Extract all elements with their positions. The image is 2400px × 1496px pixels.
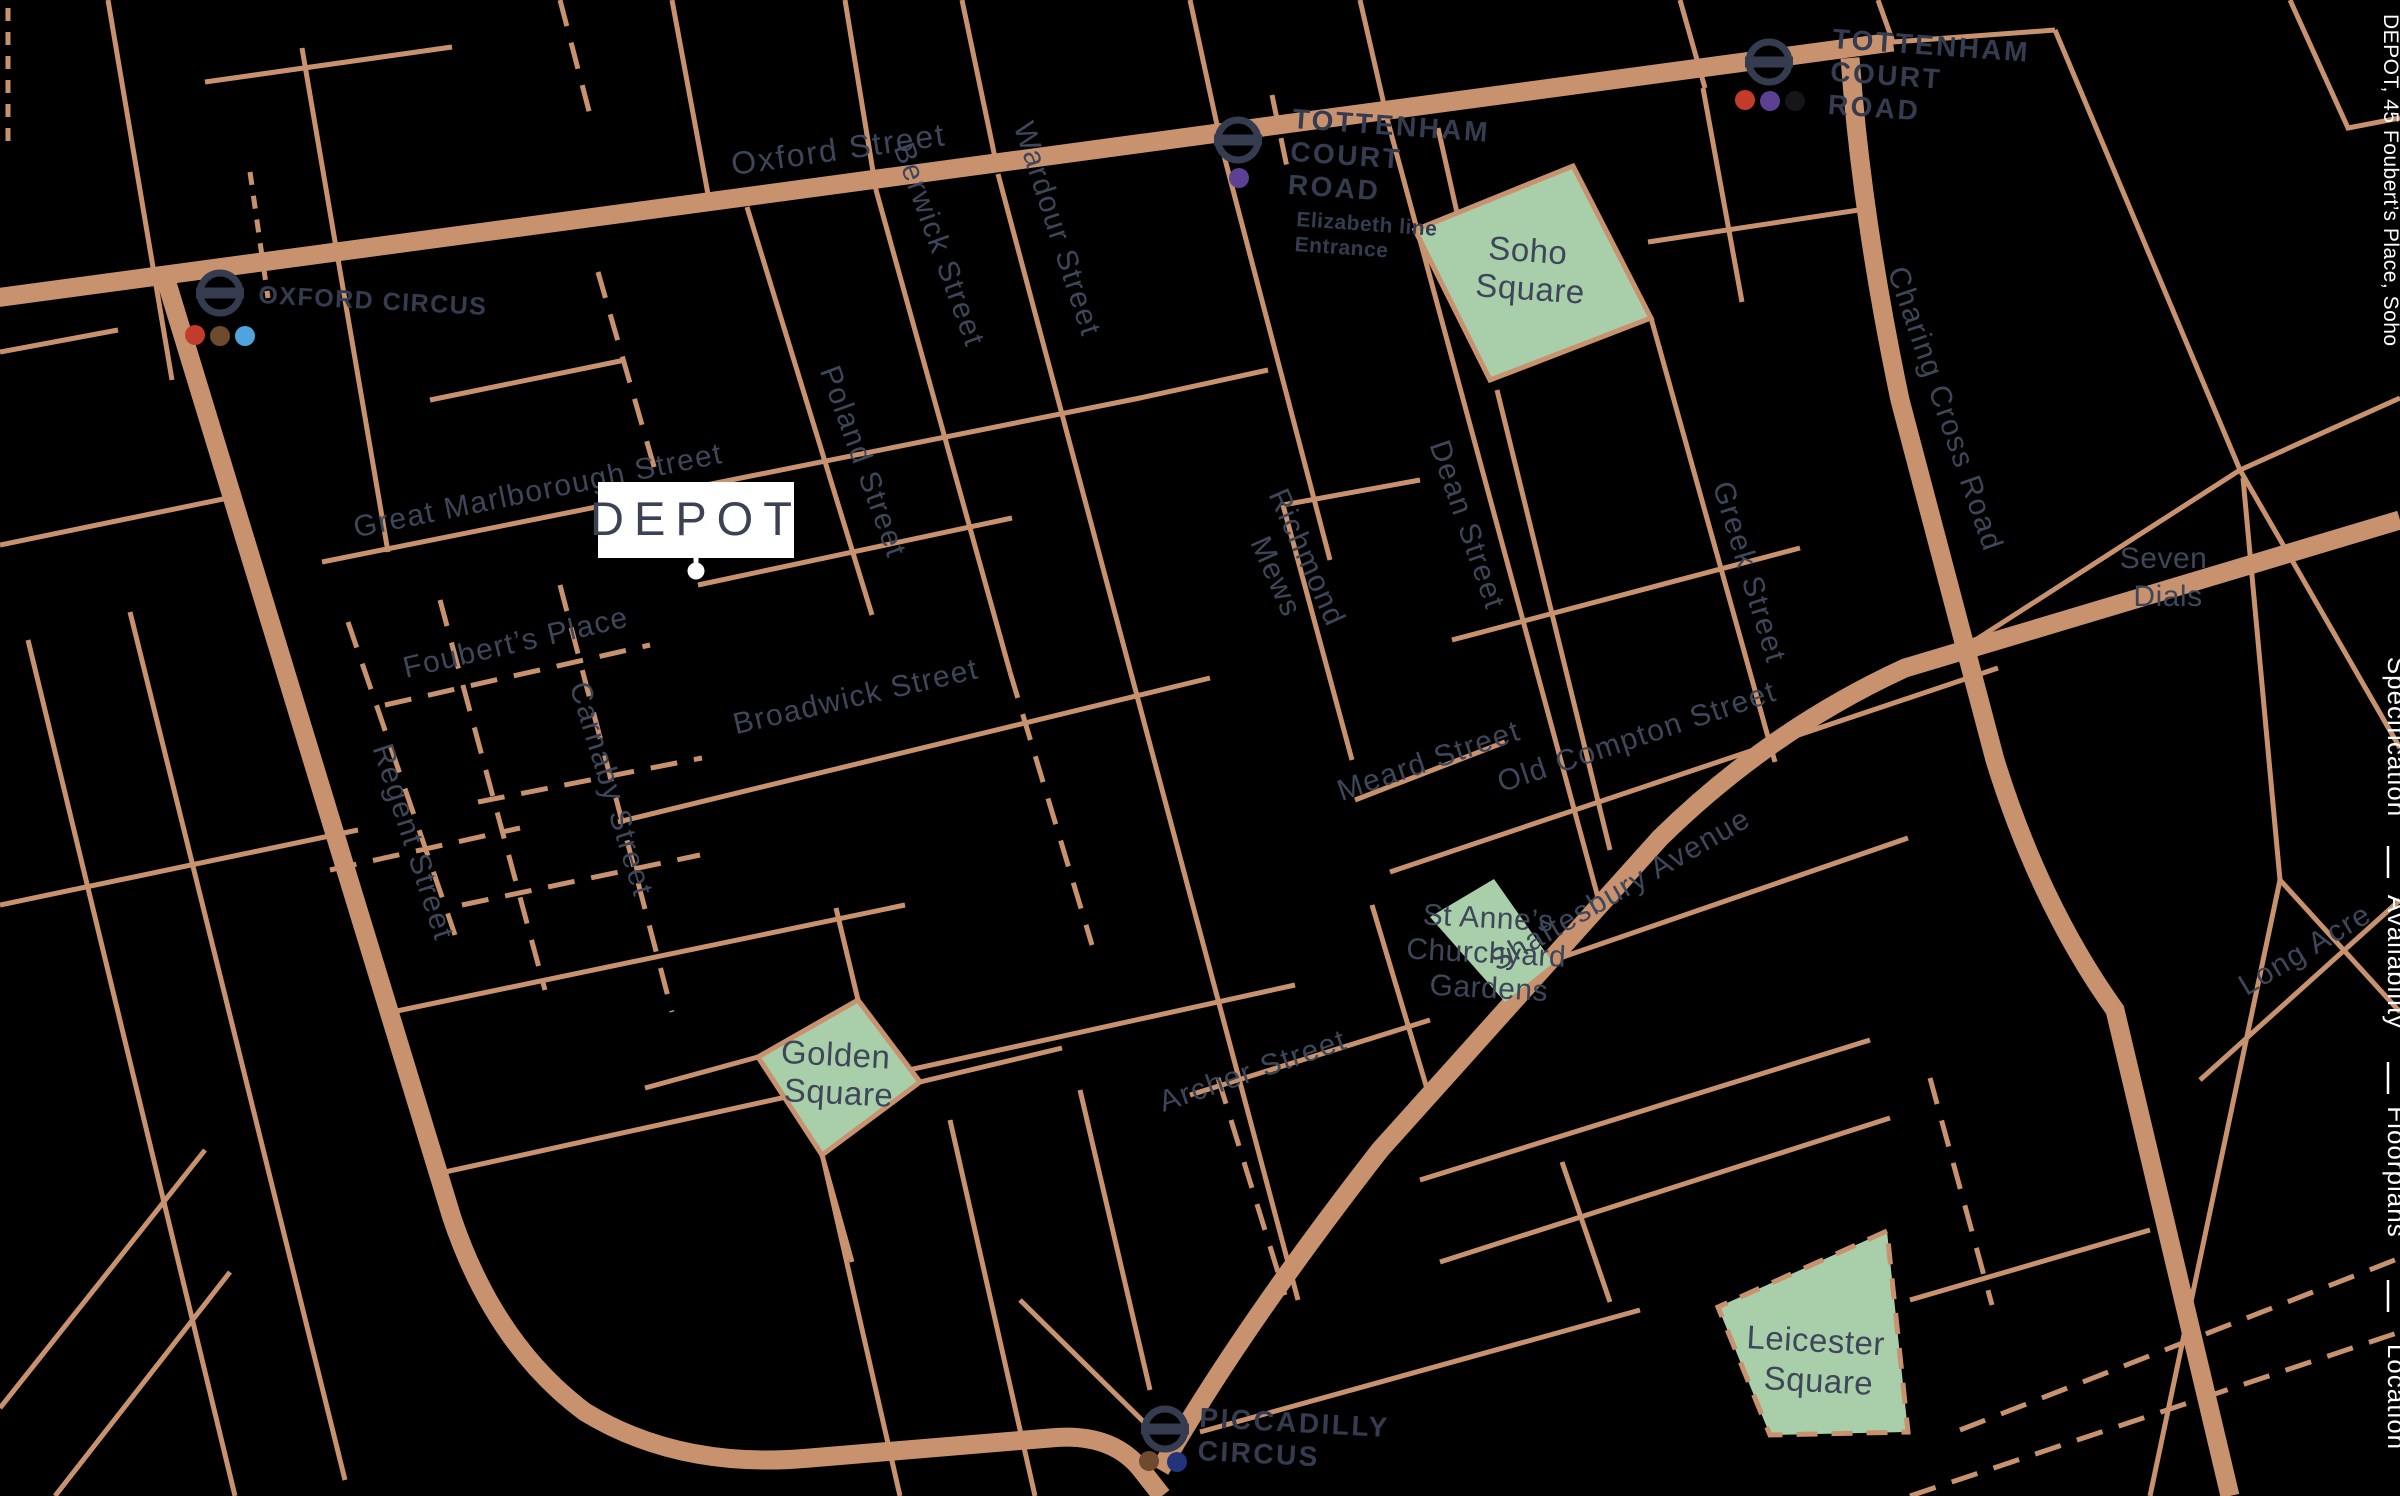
line-dot-bakerloo: [210, 326, 230, 346]
depot-marker-pin: [688, 563, 705, 580]
nav-page-title: DEPOT, 45 Foubert’s Place, Soho: [2379, 14, 2400, 347]
tube-line-dots: [1735, 90, 1805, 111]
line-dot-elizabeth: [1229, 168, 1249, 188]
line-dot-elizabeth: [1760, 91, 1780, 111]
nav-item-floorplans[interactable]: Floorplans: [2382, 1106, 2400, 1237]
map-background: [0, 0, 2400, 1496]
tube-line-dots: [185, 325, 255, 346]
park-label-golden-square: Golden Square: [778, 1033, 901, 1114]
side-navigation: DEPOT, 45 Foubert’s Place, Soho Specific…: [2379, 14, 2400, 1450]
park-label-soho-square: Soho Square: [1474, 228, 1588, 310]
depot-marker-label: DEPOT: [590, 492, 802, 545]
line-dot-northern: [1785, 91, 1805, 111]
line-dot-bakerloo: [1139, 1451, 1159, 1471]
nav-item-availability[interactable]: Availability: [2382, 895, 2400, 1029]
tube-roundel-icon: [1141, 1409, 1189, 1449]
tube-roundel-icon: [196, 273, 244, 313]
soho-map: Soho Square Golden Square St Anne’s Chur…: [0, 0, 2400, 1496]
nav-item-specification[interactable]: Specification: [2382, 657, 2400, 817]
line-dot-victoria: [235, 326, 255, 346]
tube-roundel-icon: [1745, 42, 1793, 82]
line-dot-central: [185, 325, 205, 345]
line-dot-piccadilly: [1167, 1452, 1187, 1472]
nav-item-location[interactable]: Location: [2382, 1344, 2400, 1450]
line-dot-central: [1735, 90, 1755, 110]
tube-roundel-icon: [1214, 120, 1262, 160]
